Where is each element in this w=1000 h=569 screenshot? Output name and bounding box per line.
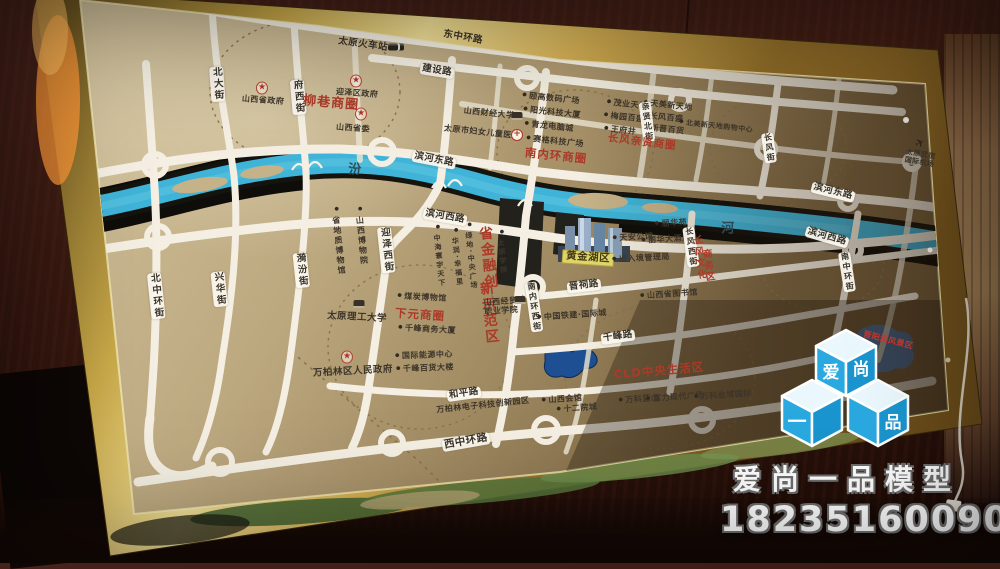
- company-name: 爱尚一品模型: [722, 458, 972, 498]
- phone-number: 18235160090: [720, 500, 974, 540]
- photo-of-map-model: { "watermark": { "cubes": ["爱", "尚", "一"…: [0, 0, 1000, 563]
